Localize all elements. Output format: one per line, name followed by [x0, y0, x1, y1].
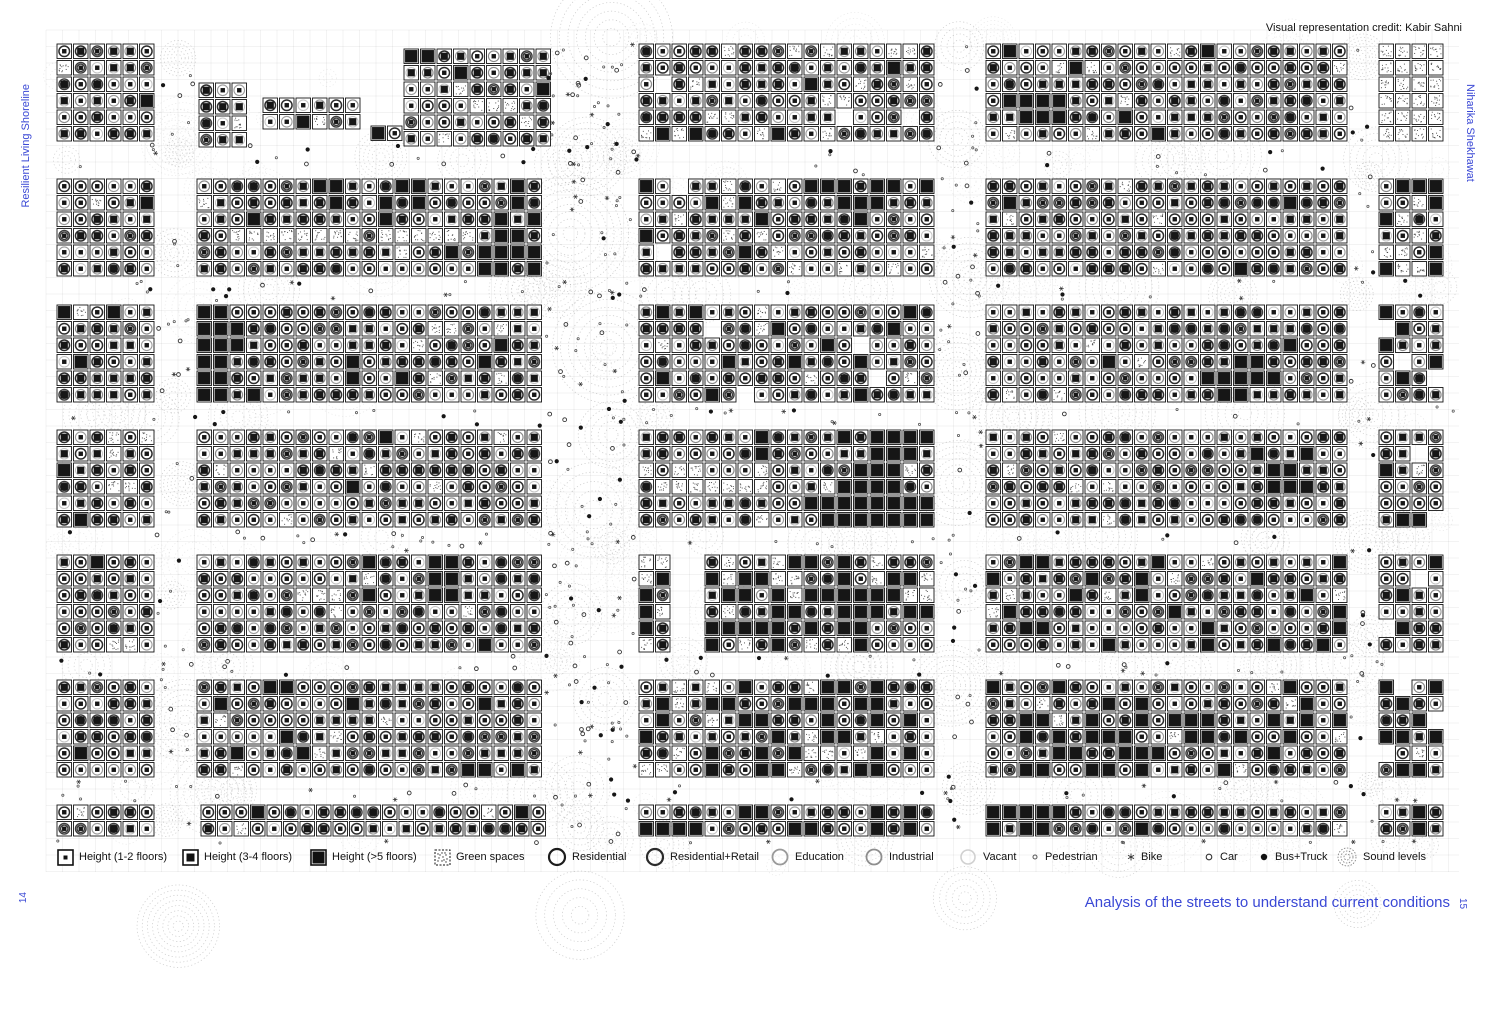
residential-retail-icon: [645, 847, 665, 867]
sound-levels-icon: [1336, 846, 1358, 868]
page-number-right: 15: [1457, 898, 1468, 909]
legend-item-pedestrian: Pedestrian: [1030, 845, 1098, 869]
caption-text: Analysis of the streets to understand cu…: [1085, 894, 1450, 911]
legend-item-education: Education: [770, 845, 844, 869]
legend-item-label: Vacant: [983, 851, 1016, 863]
legend-item-height-high: Height (>5 floors): [310, 845, 417, 869]
legend-item-bike: Bike: [1126, 845, 1162, 869]
legend-item-label: Residential: [572, 851, 626, 863]
left-margin-title: Resilient Living Shoreline: [20, 84, 32, 208]
vacant-icon: [958, 847, 978, 867]
pedestrian-icon: [1030, 852, 1040, 862]
height-mid-icon: [182, 849, 199, 866]
green-spaces-icon: [434, 849, 451, 866]
legend-item-label: Bike: [1141, 851, 1162, 863]
legend-item-label: Sound levels: [1363, 851, 1426, 863]
legend-item-bus-truck: Bus+Truck: [1258, 845, 1327, 869]
height-high-icon: [310, 849, 327, 866]
legend-item-vacant: Vacant: [958, 845, 1016, 869]
legend-item-label: Green spaces: [456, 851, 524, 863]
legend-item-industrial: Industrial: [864, 845, 934, 869]
legend-item-label: Height (3-4 floors): [204, 851, 292, 863]
industrial-icon: [864, 847, 884, 867]
legend-item-label: Bus+Truck: [1275, 851, 1327, 863]
legend-item-residential: Residential: [547, 845, 626, 869]
legend: Height (1-2 floors)Height (3-4 floors)He…: [0, 845, 1498, 869]
height-low-icon: [57, 849, 74, 866]
legend-item-green-spaces: Green spaces: [434, 845, 524, 869]
legend-item-label: Height (1-2 floors): [79, 851, 167, 863]
legend-item-label: Car: [1220, 851, 1238, 863]
bike-icon: [1126, 852, 1136, 862]
page: Visual representation credit: Kabir Sahn…: [0, 0, 1498, 1017]
right-margin-author: Niharika Shekhawat: [1464, 84, 1476, 182]
legend-item-height-mid: Height (3-4 floors): [182, 845, 292, 869]
legend-item-sound-levels: Sound levels: [1336, 845, 1426, 869]
credit-text: Visual representation credit: Kabir Sahn…: [1266, 22, 1462, 34]
legend-item-residential-retail: Residential+Retail: [645, 845, 759, 869]
legend-item-label: Pedestrian: [1045, 851, 1098, 863]
legend-item-label: Height (>5 floors): [332, 851, 417, 863]
residential-icon: [547, 847, 567, 867]
legend-item-label: Residential+Retail: [670, 851, 759, 863]
car-icon: [1203, 851, 1215, 863]
education-icon: [770, 847, 790, 867]
legend-item-car: Car: [1203, 845, 1238, 869]
bus-truck-icon: [1258, 851, 1270, 863]
legend-item-label: Education: [795, 851, 844, 863]
page-number-left: 14: [18, 892, 29, 903]
legend-item-height-low: Height (1-2 floors): [57, 845, 167, 869]
legend-item-label: Industrial: [889, 851, 934, 863]
